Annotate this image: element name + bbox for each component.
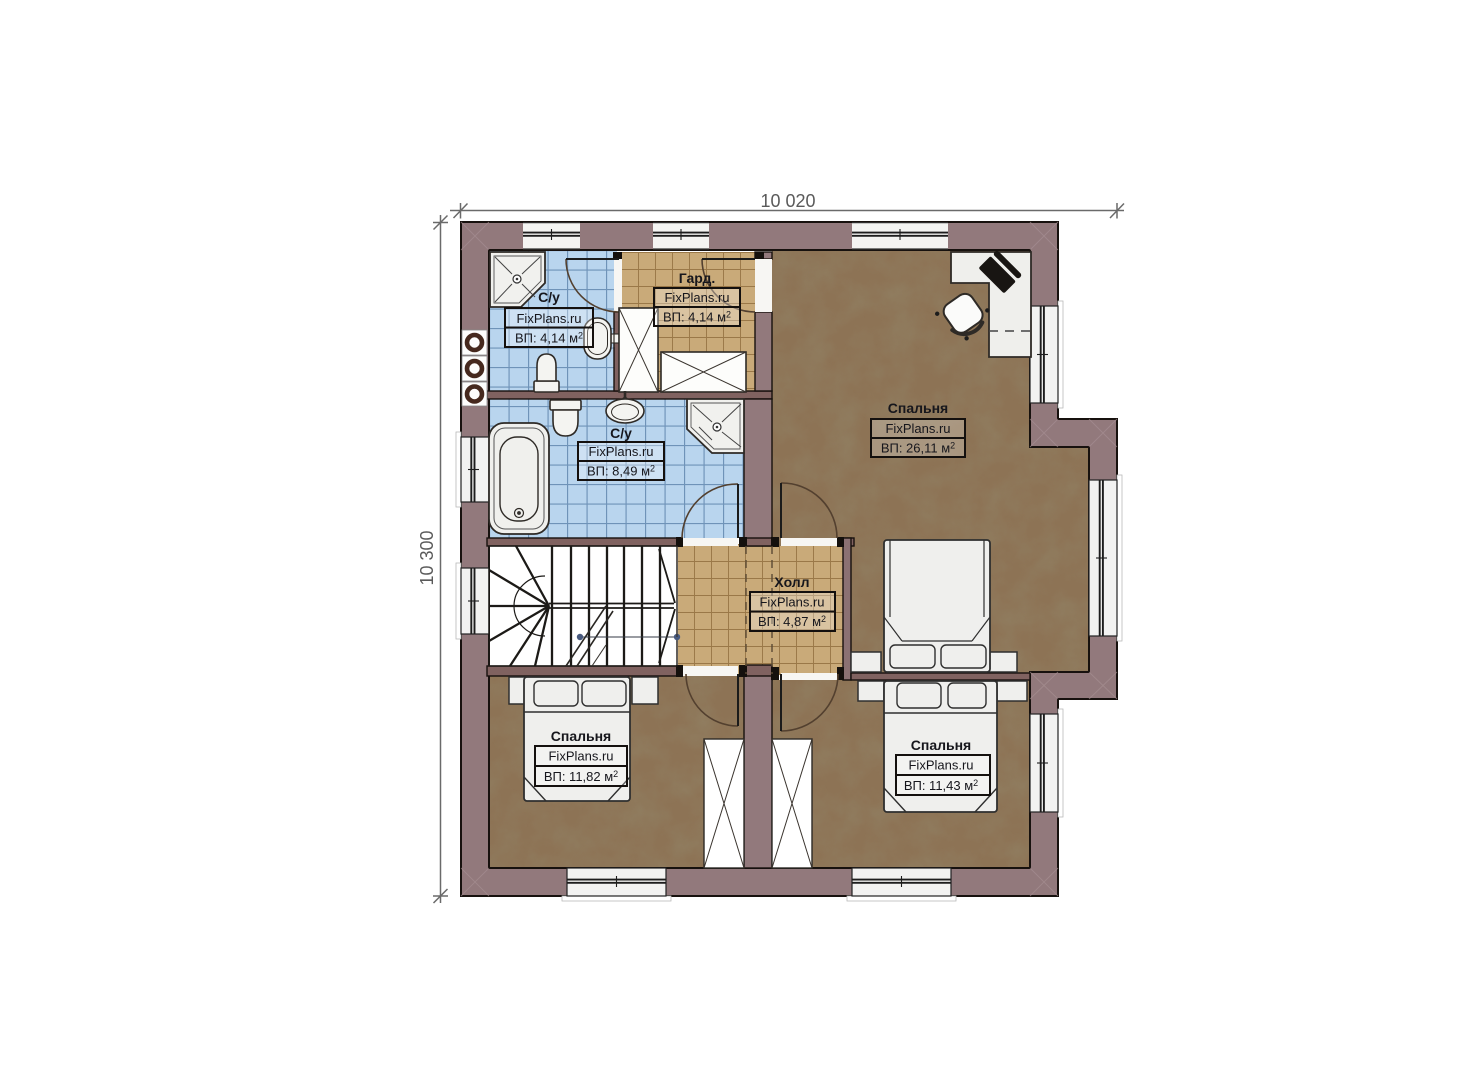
svg-text:10 300: 10 300	[417, 530, 437, 585]
svg-text:Спальня: Спальня	[911, 737, 971, 753]
svg-text:ВП: 4,14 м2: ВП: 4,14 м2	[515, 331, 583, 346]
svg-text:ВП: 4,14 м2: ВП: 4,14 м2	[663, 310, 731, 325]
svg-text:FixPlans.ru: FixPlans.ru	[548, 749, 613, 764]
svg-text:FixPlans.ru: FixPlans.ru	[516, 311, 581, 326]
svg-text:10 020: 10 020	[760, 191, 815, 211]
svg-text:Холл: Холл	[774, 574, 809, 590]
svg-text:ВП: 11,82 м2: ВП: 11,82 м2	[544, 769, 618, 784]
svg-text:С/у: С/у	[538, 289, 560, 305]
svg-text:Гард.: Гард.	[679, 270, 716, 286]
svg-text:ВП: 8,49 м2: ВП: 8,49 м2	[587, 464, 655, 479]
svg-text:ВП: 4,87 м2: ВП: 4,87 м2	[758, 614, 826, 629]
svg-text:Спальня: Спальня	[551, 728, 611, 744]
svg-text:FixPlans.ru: FixPlans.ru	[908, 758, 973, 773]
svg-text:FixPlans.ru: FixPlans.ru	[885, 421, 950, 436]
svg-text:С/у: С/у	[610, 425, 632, 441]
svg-text:FixPlans.ru: FixPlans.ru	[759, 595, 824, 610]
svg-text:ВП: 11,43 м2: ВП: 11,43 м2	[904, 778, 978, 793]
svg-text:Спальня: Спальня	[888, 400, 948, 416]
svg-text:FixPlans.ru: FixPlans.ru	[664, 290, 729, 305]
svg-text:FixPlans.ru: FixPlans.ru	[588, 444, 653, 459]
svg-text:ВП: 26,11 м2: ВП: 26,11 м2	[881, 441, 955, 456]
